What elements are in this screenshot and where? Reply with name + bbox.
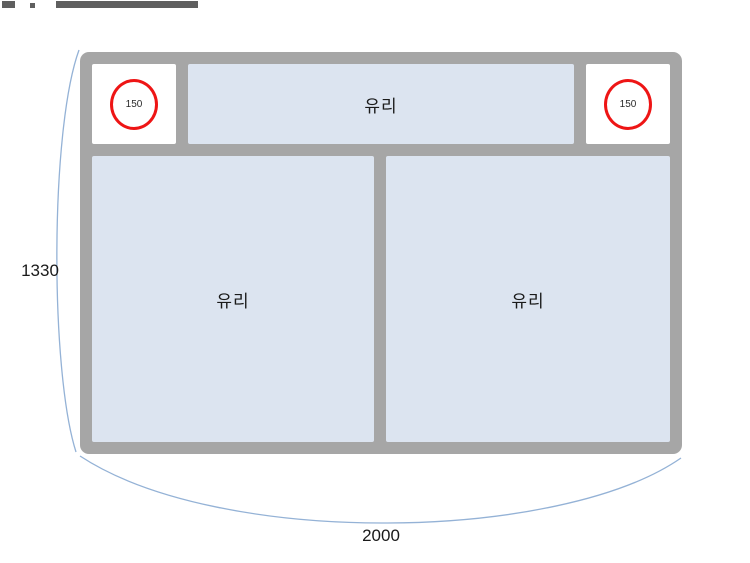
- glass-panel-bottom-left: 유리: [92, 156, 374, 442]
- height-dimension-label: 1330: [15, 261, 65, 281]
- clipped-glyph: [30, 3, 35, 8]
- window-diagram: 150 유리 150 유리 유리 1330 2000: [0, 0, 750, 563]
- clipped-text-fragment: [2, 0, 202, 9]
- glass-label-bottom-left: 유리: [216, 287, 249, 312]
- vent-size-label-right: 150: [620, 99, 637, 110]
- glass-panel-top: 유리: [188, 64, 574, 144]
- height-dimension-curve: [57, 50, 79, 452]
- width-dimension-curve: [80, 456, 681, 523]
- glass-panel-bottom-right: 유리: [386, 156, 670, 442]
- width-dimension-label: 2000: [340, 526, 422, 546]
- clipped-glyph: [2, 1, 15, 8]
- glass-label-top: 유리: [364, 92, 397, 117]
- glass-label-bottom-right: 유리: [511, 287, 544, 312]
- vent-circle-right-icon: 150: [604, 79, 652, 130]
- vent-box-left: 150: [92, 64, 176, 144]
- vent-size-label-left: 150: [126, 99, 143, 110]
- clipped-glyph-row: [56, 1, 198, 8]
- vent-circle-left-icon: 150: [110, 79, 158, 130]
- vent-box-right: 150: [586, 64, 670, 144]
- window-frame: 150 유리 150 유리 유리: [80, 52, 682, 454]
